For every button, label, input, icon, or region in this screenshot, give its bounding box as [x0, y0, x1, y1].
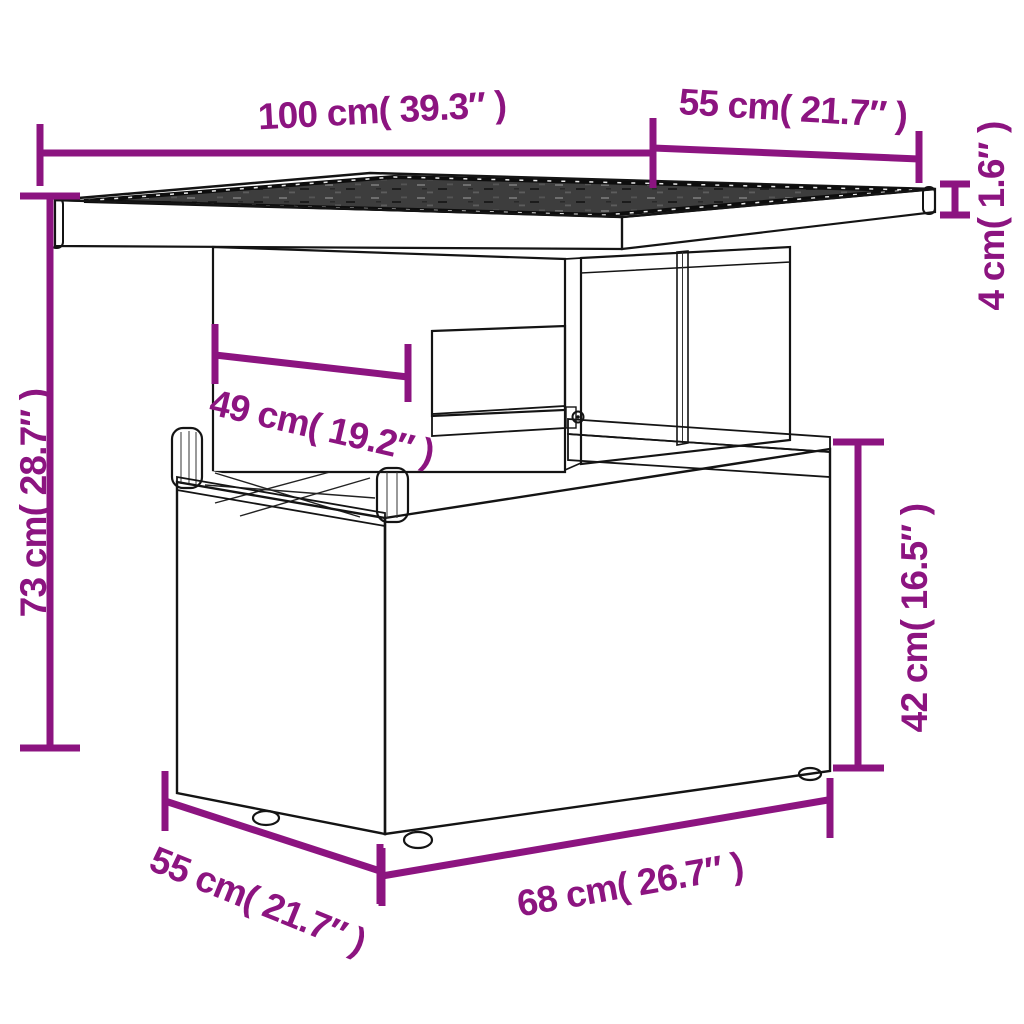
- dim-total-height-label: 73 cm( 28.7″ ): [13, 389, 54, 618]
- lift-knob-center: [576, 415, 580, 419]
- product-dimension-diagram: 100 cm( 39.3″ ) 55 cm( 21.7″ ) 4 cm( 1.6…: [0, 0, 1024, 1024]
- dim-glass-thickness-label: 4 cm( 1.6″ ): [971, 121, 1012, 310]
- dimension-diagram-canvas: 100 cm( 39.3″ ) 55 cm( 21.7″ ) 4 cm( 1.6…: [0, 0, 1024, 1024]
- dim-base-height-label: 42 cm( 16.5″ ): [894, 504, 935, 733]
